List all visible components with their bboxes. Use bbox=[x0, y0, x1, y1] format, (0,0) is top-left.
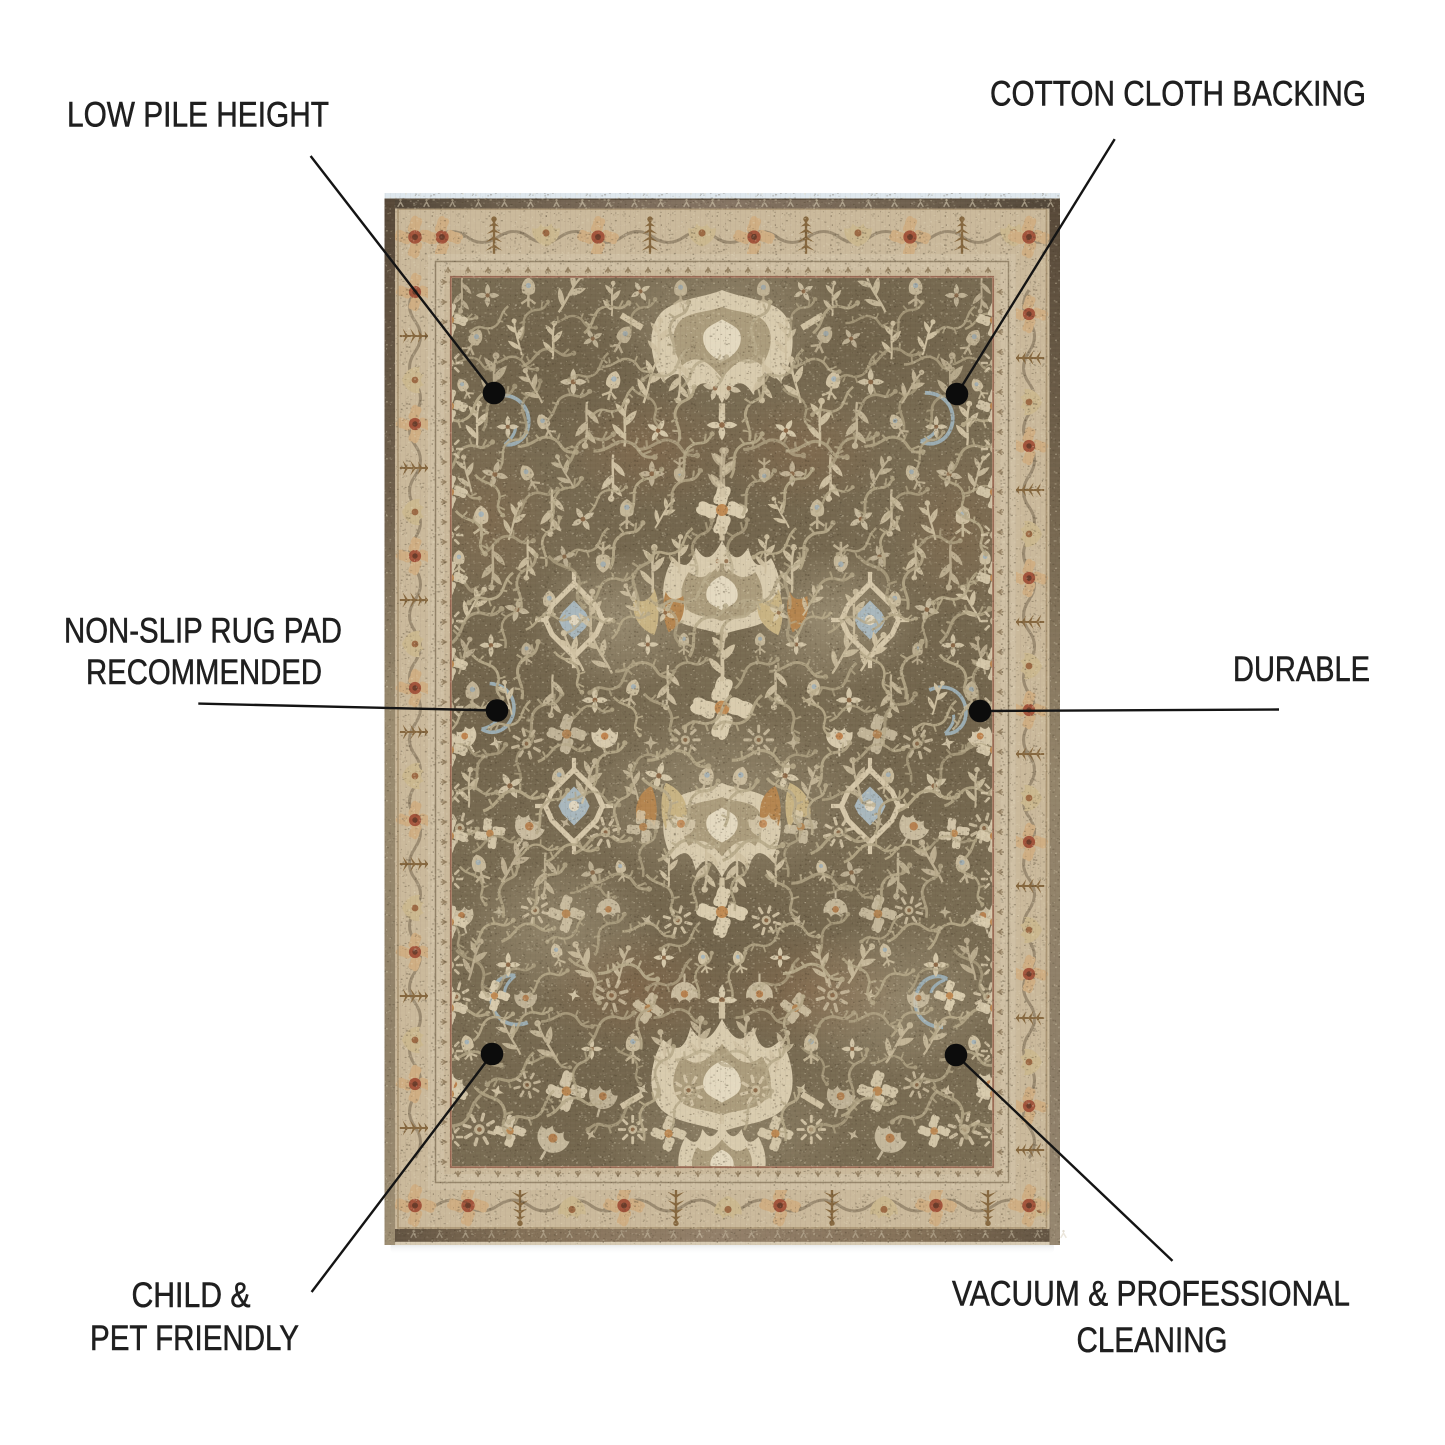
svg-text:DURABLE: DURABLE bbox=[1233, 650, 1370, 689]
svg-text:VACUUM & PROFESSIONAL: VACUUM & PROFESSIONAL bbox=[952, 1275, 1350, 1314]
svg-text:CHILD &: CHILD & bbox=[132, 1276, 251, 1315]
svg-text:NON-SLIP RUG PAD: NON-SLIP RUG PAD bbox=[64, 612, 342, 651]
svg-text:CLEANING: CLEANING bbox=[1077, 1321, 1228, 1360]
svg-text:PET FRIENDLY: PET FRIENDLY bbox=[90, 1319, 299, 1358]
svg-text:LOW PILE HEIGHT: LOW PILE HEIGHT bbox=[67, 95, 329, 134]
svg-text:RECOMMENDED: RECOMMENDED bbox=[86, 653, 322, 692]
svg-text:COTTON CLOTH BACKING: COTTON CLOTH BACKING bbox=[990, 75, 1366, 114]
